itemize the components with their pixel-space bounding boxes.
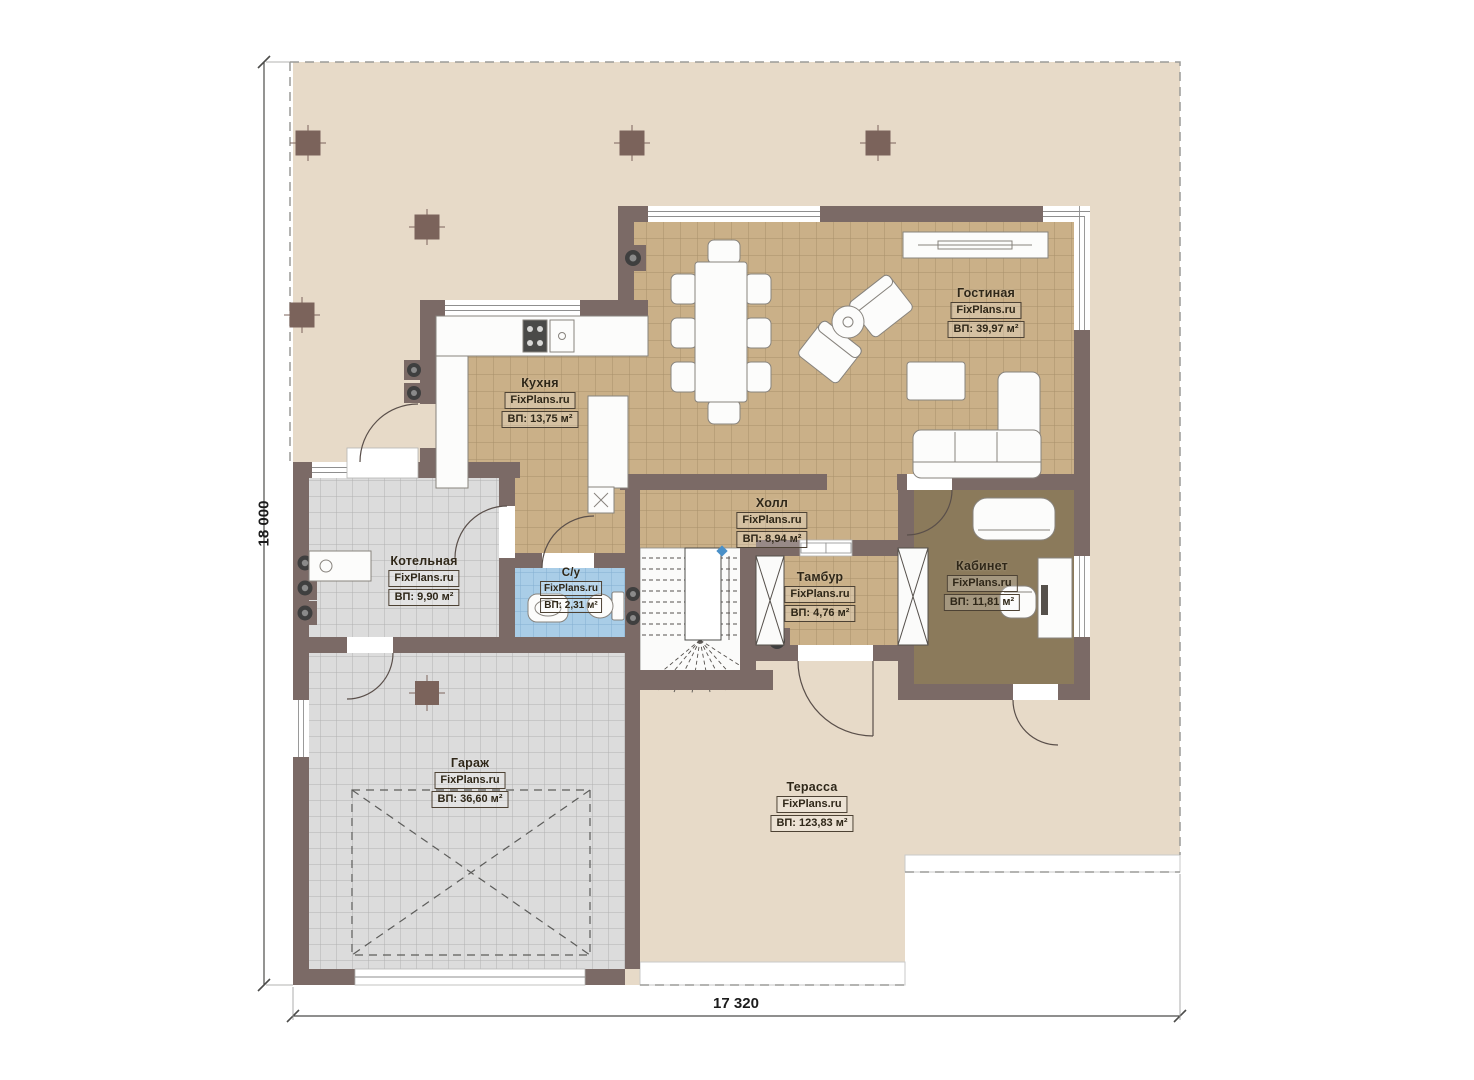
office-chair (1000, 586, 1036, 618)
vestibule-floor (784, 556, 898, 645)
shaft-box (588, 487, 614, 513)
kitchen-island (588, 396, 628, 488)
wc-toilet (587, 592, 624, 620)
office-desk (1038, 558, 1072, 638)
kitchen-sink (550, 320, 574, 352)
dimension-height-label: 18 000 (256, 484, 273, 564)
wc-sink (528, 594, 568, 622)
stove (523, 320, 547, 352)
tv-console (903, 232, 1048, 258)
coffee-table (907, 362, 965, 400)
dining-table (695, 262, 747, 402)
boiler-counter (309, 551, 371, 581)
floor-plan-svg (0, 0, 1474, 1080)
office-sofa (973, 498, 1055, 540)
garage-floor (309, 653, 625, 969)
dimension-width-label: 17 320 (713, 995, 759, 1012)
floor-plan-page: Гостиная FixPlans.ru ВП: 39,97 м² Кухня … (0, 0, 1474, 1080)
